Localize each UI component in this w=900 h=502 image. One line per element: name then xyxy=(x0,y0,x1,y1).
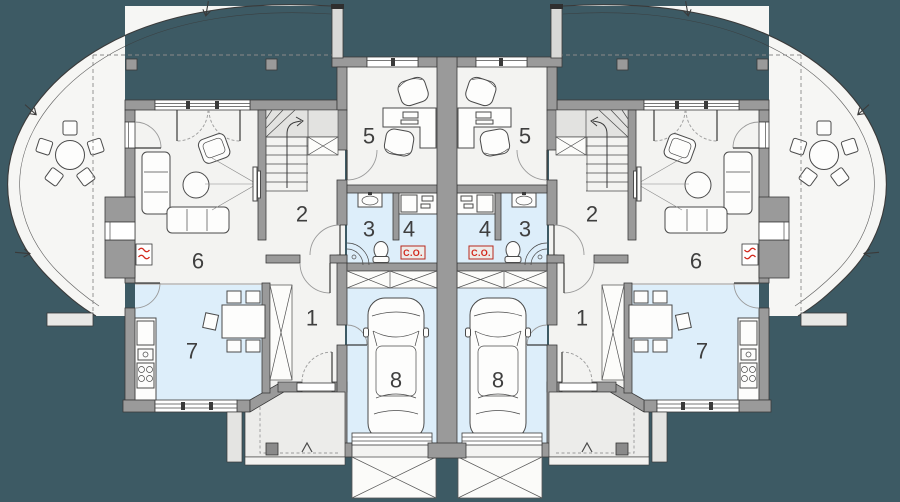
room-label-hall-left: 2 xyxy=(296,202,308,227)
room-label-bath-right: 3 xyxy=(519,217,531,242)
floor-plan: 6 2 5 3 4 1 7 8 6 2 5 3 4 1 7 8 C.O. C.O… xyxy=(0,0,900,502)
room-label-kitchen-right: 7 xyxy=(696,339,708,364)
room-label-utility-left: 4 xyxy=(403,217,415,242)
room-label-living-right: 6 xyxy=(690,249,702,274)
floor-plan-svg: 6 2 5 3 4 1 7 8 6 2 5 3 4 1 7 8 C.O. C.O… xyxy=(0,0,900,502)
room-label-living-left: 6 xyxy=(192,249,204,274)
central-heating-label-left: C.O. xyxy=(403,248,423,258)
room-label-office-left: 5 xyxy=(363,124,375,149)
room-label-bath-left: 3 xyxy=(363,217,375,242)
room-label-utility-right: 4 xyxy=(479,217,491,242)
room-label-garage-left: 8 xyxy=(390,368,402,393)
room-label-office-right: 5 xyxy=(519,124,531,149)
room-label-garage-right: 8 xyxy=(492,368,504,393)
room-label-kitchen-left: 7 xyxy=(186,339,198,364)
room-label-entry-right: 1 xyxy=(576,306,588,331)
room-label-entry-left: 1 xyxy=(306,306,318,331)
room-label-hall-right: 2 xyxy=(586,202,598,227)
central-heating-label-right: C.O. xyxy=(471,248,491,258)
